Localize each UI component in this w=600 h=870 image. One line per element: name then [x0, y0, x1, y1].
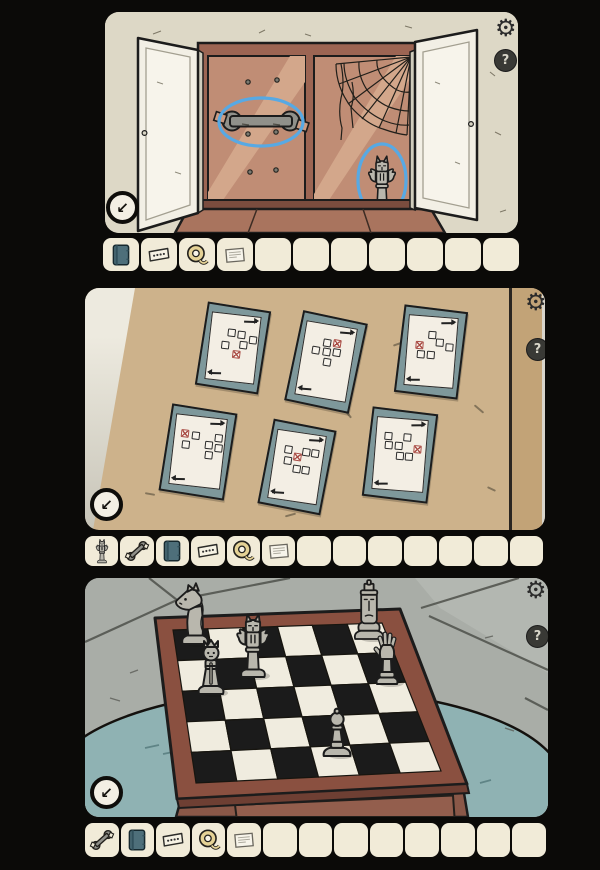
notebook-item[interactable]: [103, 238, 139, 271]
diagram-square: [214, 434, 223, 443]
diagram-square: [205, 441, 214, 450]
arrow-top-right: [442, 322, 455, 324]
help-icon[interactable]: ?: [526, 625, 548, 648]
diagram-square: [332, 349, 341, 358]
arrow-top-right: [411, 424, 424, 426]
board-square[interactable]: [231, 749, 278, 781]
cupboard-scene-art: [105, 12, 518, 233]
notebook-icon: [159, 538, 185, 564]
arrow-bottom-left: [376, 482, 388, 484]
arrow-top-right: [309, 439, 322, 441]
diagram-square: [444, 342, 453, 351]
measuring-tape-item[interactable]: [192, 823, 226, 857]
diagram-square: [311, 346, 320, 355]
note-item[interactable]: [217, 238, 253, 271]
diagram-square: [322, 348, 331, 357]
picture-wall-scene: ⚙ ? ↙: [85, 288, 545, 530]
marked-square: [413, 445, 422, 454]
inventory-bar: [103, 238, 519, 271]
puzzle-diagram-paper: [267, 428, 327, 504]
wrench-icon: [124, 538, 150, 564]
puzzle-diagram-paper: [168, 413, 228, 490]
arrow-top-right: [340, 332, 353, 335]
notebook-item[interactable]: [121, 823, 155, 857]
inventory-slot-empty: [407, 238, 443, 271]
board-square[interactable]: [187, 720, 231, 752]
measuring-tape-icon: [196, 827, 222, 853]
diagram-square: [394, 442, 403, 451]
note-icon: [231, 827, 257, 853]
chessboard-scene-art: [85, 578, 548, 817]
inventory-slot-empty: [477, 823, 511, 857]
diagram-square: [239, 340, 248, 349]
diagram-square: [283, 455, 292, 464]
inventory-slot-empty: [297, 536, 330, 566]
inventory-slot-empty: [331, 238, 367, 271]
ticket-item[interactable]: [191, 536, 224, 566]
marked-square: [333, 339, 342, 348]
inventory-slot-empty: [369, 238, 405, 271]
inventory-slot-empty: [255, 238, 291, 271]
ticket-icon: [160, 827, 186, 853]
arrow-top-right: [210, 423, 223, 425]
puzzle-diagram-paper: [371, 416, 429, 493]
door-knob: [469, 122, 474, 127]
arrow-bottom-left: [173, 478, 185, 480]
wrench-icon: [89, 827, 115, 853]
marked-square: [232, 350, 241, 359]
ticket-icon: [146, 242, 172, 268]
settings-gear-icon[interactable]: ⚙: [495, 16, 517, 40]
board-square[interactable]: [191, 751, 236, 783]
diagram-square: [385, 441, 394, 450]
inventory-slot-empty: [445, 238, 481, 271]
diagram-square: [395, 452, 404, 461]
inventory-slot-empty: [334, 823, 368, 857]
notebook-icon: [124, 827, 150, 853]
arrow-bottom-left: [272, 491, 284, 493]
diagram-square: [403, 433, 412, 442]
wrench-item[interactable]: [85, 823, 119, 857]
notebook-icon: [108, 242, 134, 268]
cupboard[interactable]: [175, 43, 445, 233]
picture-frame[interactable]: [195, 302, 271, 395]
chessboard-scene: ⚙ ? ↙: [85, 578, 548, 817]
exit-arrow-button[interactable]: ↙: [106, 191, 139, 224]
diagram-square: [426, 350, 435, 359]
diagram-square: [191, 431, 200, 440]
inventory-slot-empty: [441, 823, 475, 857]
ticket-item[interactable]: [156, 823, 190, 857]
diagram-square: [292, 464, 301, 473]
marked-square: [415, 340, 424, 349]
marked-square: [292, 452, 301, 461]
inventory-bar: [85, 823, 546, 857]
note-icon: [266, 538, 292, 564]
diagram-square: [205, 451, 214, 460]
chess-piece-icon: [89, 538, 115, 564]
ticket-item[interactable]: [141, 238, 177, 271]
inventory-slot-empty: [293, 238, 329, 271]
inventory-slot-empty: [333, 536, 366, 566]
diagram-square: [301, 465, 310, 474]
measuring-tape-icon: [184, 242, 210, 268]
arrow-bottom-left: [209, 372, 221, 374]
inventory-slot-empty: [512, 823, 546, 857]
notebook-item[interactable]: [156, 536, 189, 566]
diagram-square: [428, 331, 437, 340]
diagram-square: [322, 358, 331, 367]
measuring-tape-icon: [230, 538, 256, 564]
picture-frame[interactable]: [394, 304, 468, 399]
diagram-square: [248, 336, 257, 345]
diagram-square: [221, 340, 230, 349]
left-door[interactable]: [138, 38, 203, 231]
note-item[interactable]: [227, 823, 261, 857]
diagram-square: [181, 440, 190, 449]
arrow-bottom-left: [408, 378, 420, 380]
puzzle-diagram-paper: [294, 320, 358, 402]
inventory-bar: [85, 536, 543, 566]
help-icon[interactable]: ?: [526, 338, 545, 361]
inventory-slot-empty: [299, 823, 333, 857]
inventory-slot-empty: [510, 536, 543, 566]
picture-frame[interactable]: [159, 403, 238, 500]
cupboard-scene: ⚙ ? ↙: [105, 12, 518, 233]
exit-arrow-button[interactable]: ↙: [90, 776, 123, 809]
puzzle-diagram-paper: [403, 314, 459, 389]
settings-gear-icon[interactable]: ⚙: [525, 290, 545, 314]
picture-frame[interactable]: [257, 419, 336, 516]
arrow-bottom-left: [299, 388, 311, 391]
diagram-square: [227, 328, 236, 337]
chess-piece-item[interactable]: [85, 536, 118, 566]
diagram-square: [435, 339, 444, 348]
inventory-slot-empty: [439, 536, 472, 566]
diagram-square: [214, 443, 223, 452]
diagram-square: [302, 447, 311, 456]
marked-square: [181, 429, 190, 438]
right-door[interactable]: [410, 30, 477, 220]
diagram-square: [384, 432, 393, 441]
diagram-square: [322, 338, 331, 347]
inventory-slot-empty: [404, 536, 437, 566]
arrow-top-right: [244, 320, 257, 322]
puzzle-diagram-paper: [204, 311, 262, 384]
diagram-square: [237, 330, 246, 339]
picture-frames-layer: [85, 288, 545, 530]
picture-frame[interactable]: [362, 406, 438, 503]
measuring-tape-item[interactable]: [227, 536, 260, 566]
help-icon[interactable]: ?: [494, 49, 517, 72]
door-knob: [142, 131, 147, 136]
exit-arrow-button[interactable]: ↙: [90, 488, 123, 521]
inventory-slot-empty: [368, 536, 401, 566]
note-icon: [222, 242, 248, 268]
cupboard-base: [175, 200, 445, 233]
ticket-icon: [195, 538, 221, 564]
picture-frame[interactable]: [284, 310, 368, 414]
diagram-square: [311, 449, 320, 458]
wrench-item[interactable]: [120, 536, 153, 566]
diagram-square: [417, 350, 426, 359]
inventory-slot-empty: [405, 823, 439, 857]
measuring-tape-item[interactable]: [179, 238, 215, 271]
diagram-square: [405, 452, 414, 461]
note-item[interactable]: [262, 536, 295, 566]
inventory-slot-empty: [263, 823, 297, 857]
inventory-slot-empty: [370, 823, 404, 857]
inventory-slot-empty: [483, 238, 519, 271]
board-square[interactable]: [225, 719, 271, 751]
inventory-slot-empty: [474, 536, 507, 566]
diagram-square: [284, 445, 293, 454]
game-screenshot-stack: ⚙ ? ↙ ⚙ ? ↙: [0, 0, 600, 870]
settings-gear-icon[interactable]: ⚙: [525, 578, 547, 602]
